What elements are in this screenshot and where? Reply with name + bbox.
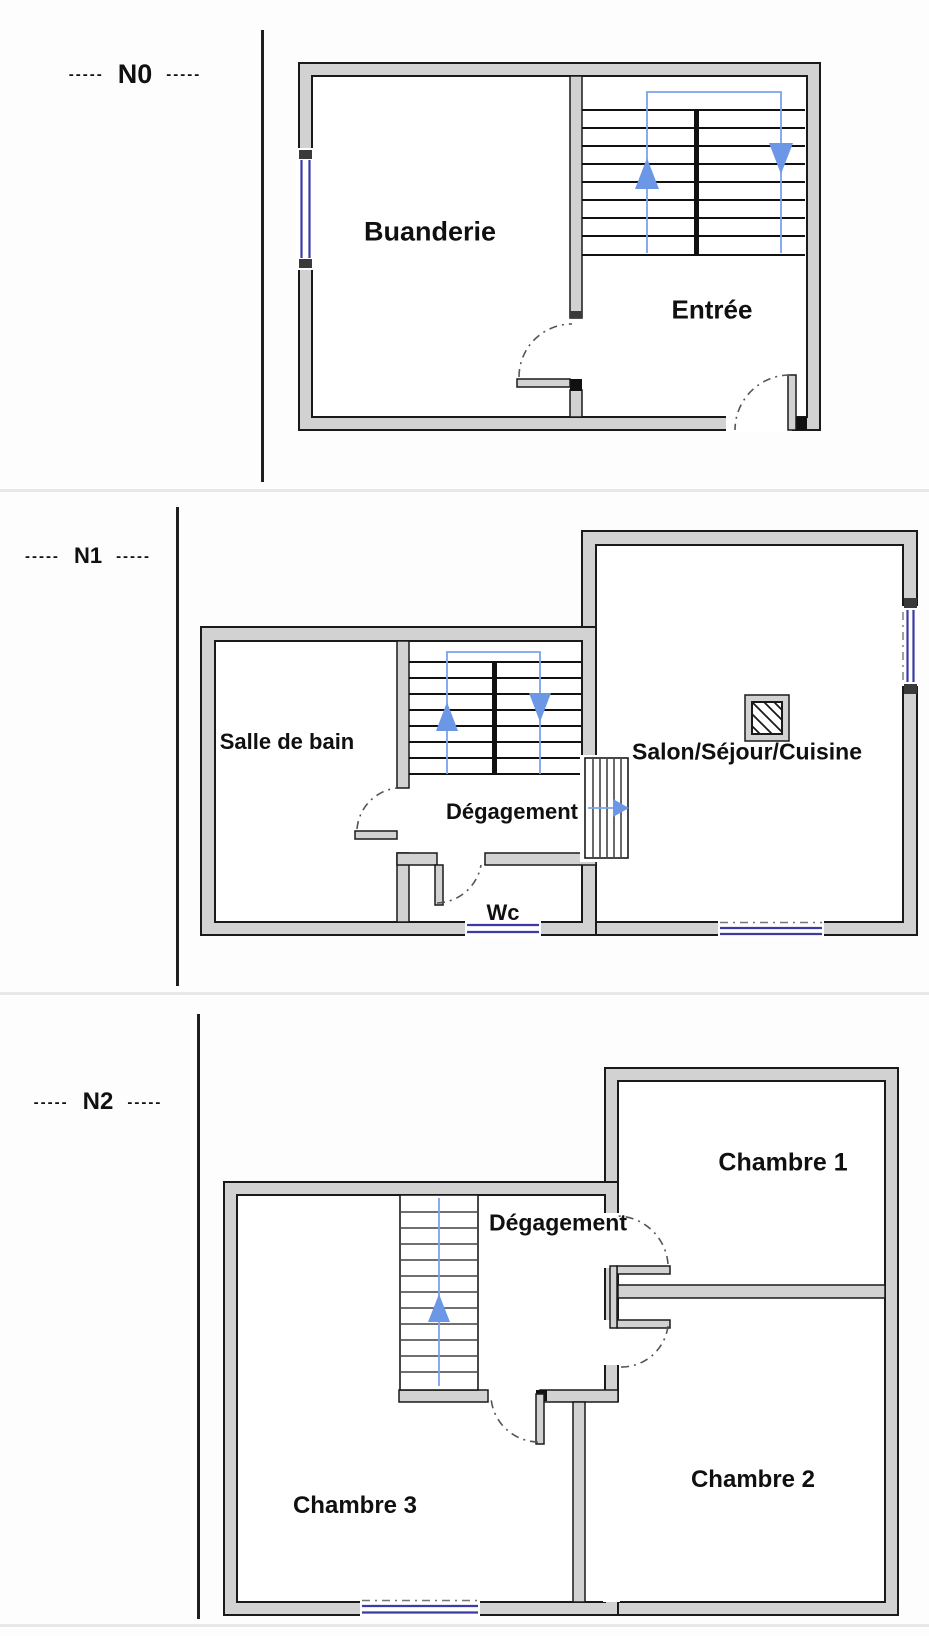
n2-seam-erase — [603, 1402, 620, 1602]
n2-ch2-door-leaf — [617, 1320, 670, 1328]
n0-dividing-wall-lower — [570, 390, 582, 417]
n1-right-window-cap-bottom — [904, 684, 917, 694]
n2-hall-bottom-wall — [540, 1390, 618, 1402]
n0-wall-endcap — [570, 311, 582, 318]
room-label-chambre-2: Chambre 2 — [691, 1466, 815, 1494]
n0-door-hinge-block — [570, 379, 582, 391]
n0-stair-center-divider — [694, 110, 699, 255]
n2-ch1-door-leaf — [617, 1266, 670, 1274]
n1-wc-door-leaf — [435, 865, 443, 905]
n1-bathroom-door-leaf — [355, 831, 397, 839]
room-label-wc: Wc — [487, 900, 520, 926]
room-label-degagement-n1: Dégagement — [446, 799, 578, 825]
room-label-buanderie: Buanderie — [364, 217, 496, 248]
n1-bathroom-wall-upper — [397, 641, 409, 788]
n2-ch2-ch3-wall — [573, 1402, 585, 1602]
room-label-degagement-n2: Dégagement — [489, 1210, 627, 1237]
room-label-entree: Entrée — [672, 295, 753, 326]
n2-stair-bottom-wall — [399, 1390, 488, 1402]
n0-window-cap-top — [299, 150, 312, 159]
n1-hall-bottom-wall-right — [485, 853, 596, 865]
n1-stair-center-divider — [492, 662, 497, 774]
room-label-chambre-1: Chambre 1 — [718, 1149, 847, 1178]
floorplan-page: ----- N0 ----- ----- N1 ----- ----- N2 -… — [0, 0, 929, 1636]
floorplan-n0 — [296, 63, 820, 432]
n0-entry-door-leaf — [788, 375, 796, 430]
n2-ch3-door-leaf — [536, 1394, 544, 1444]
room-label-salle-de-bain: Salle de bain — [220, 729, 355, 755]
n2-door-bracket — [610, 1266, 617, 1328]
n0-dividing-wall-upper — [570, 76, 582, 318]
n2-window-opening — [360, 1599, 480, 1617]
n1-right-window-cap-top — [904, 598, 917, 608]
room-label-salon-sejour-cuisine: Salon/Séjour/Cuisine — [632, 739, 862, 766]
n1-hall-bottom-wall-left — [397, 853, 437, 865]
n0-window-opening — [296, 148, 314, 270]
n0-interior-door-leaf — [517, 379, 570, 387]
n2-ch1-ch2-wall — [618, 1285, 885, 1298]
n0-window-cap-bottom — [299, 259, 312, 268]
room-label-chambre-3: Chambre 3 — [293, 1492, 417, 1520]
